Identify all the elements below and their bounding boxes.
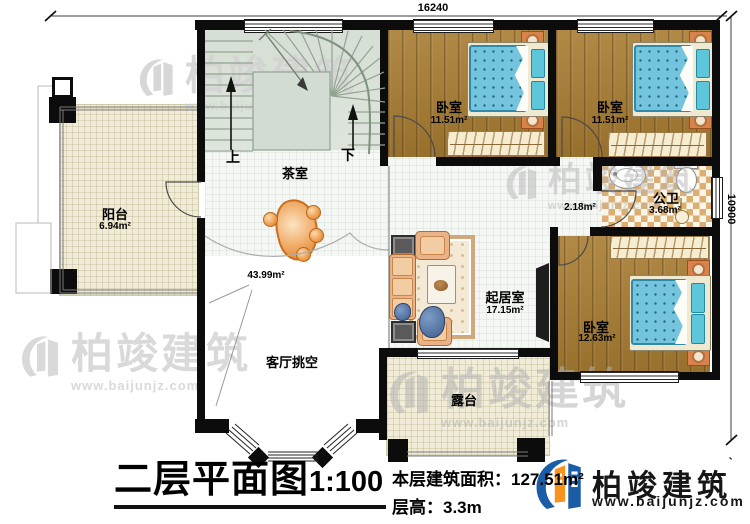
tea-room-stone xyxy=(296,247,311,262)
wall xyxy=(197,218,205,425)
top-dimension: 16240 xyxy=(404,2,462,14)
wall xyxy=(517,348,558,357)
watermark: 柏竣建筑 www.baijunjz.com xyxy=(138,56,357,113)
brand-url: www.baijunjz.com xyxy=(592,493,745,509)
bed-pillow xyxy=(531,81,545,110)
person-figure xyxy=(394,303,411,321)
bed-pillow xyxy=(531,49,545,78)
wall xyxy=(341,20,413,30)
wall xyxy=(550,227,558,380)
window xyxy=(577,19,654,33)
wall xyxy=(436,157,560,166)
wall xyxy=(593,157,602,191)
tea-room-stone xyxy=(306,205,321,220)
wardrobe xyxy=(608,132,707,157)
terrace-label: 露台 xyxy=(437,394,491,408)
exterior-projection-lines xyxy=(16,86,52,293)
armchair xyxy=(415,231,450,260)
bathroom-area: 3.68m² xyxy=(638,205,692,216)
bay-corner xyxy=(195,419,229,433)
watermark-name: 柏竣建筑 xyxy=(185,56,357,96)
watermark-logo-icon xyxy=(505,163,541,205)
right-dimension: 10900 xyxy=(725,179,737,239)
wall xyxy=(590,227,712,236)
watermark-url: www.baijunjz.com xyxy=(441,415,629,430)
carpet-motif xyxy=(434,280,448,291)
floor-plan-page: 柏竣建筑 www.baijunjz.com 柏竣建筑 www.baijunjz.… xyxy=(0,0,750,524)
floor-height-text: 层高：3.3m xyxy=(392,499,482,516)
tea-room-stone xyxy=(263,212,278,227)
living-room-area: 17.15m² xyxy=(477,305,533,316)
bay-corner xyxy=(356,419,385,433)
watermark-logo-icon xyxy=(20,333,64,383)
bed-pillow xyxy=(691,283,705,313)
terrace-window xyxy=(417,348,519,359)
bay-post xyxy=(312,447,333,468)
tea-room-stone xyxy=(309,228,324,243)
balcony-floor xyxy=(60,105,198,295)
wall xyxy=(652,20,720,30)
balcony-pillar xyxy=(50,269,77,294)
wall xyxy=(492,20,577,30)
living-room-label: 起居室 xyxy=(477,291,533,305)
side-table xyxy=(391,321,416,343)
void-label: 客厅挑空 xyxy=(260,356,324,370)
wardrobe xyxy=(610,236,709,259)
tea-room-label: 茶室 xyxy=(269,167,321,181)
bedroom2-label: 卧室 xyxy=(584,101,636,115)
floor-area-text: 本层建筑面积：127.51m² xyxy=(392,471,584,488)
watermark-url: www.baijunjz.com xyxy=(185,99,357,113)
wall xyxy=(677,372,720,380)
balcony-area: 6.94m² xyxy=(85,221,145,232)
stairs-up-label: 上 xyxy=(221,150,245,165)
terrace-pillar xyxy=(388,439,408,462)
bedroom3-window xyxy=(580,371,679,383)
watermark-url: www.baijunjz.com xyxy=(71,378,251,393)
bedroom3-area: 12.63m² xyxy=(566,333,628,344)
bathroom-window xyxy=(711,177,723,219)
bed-pillow xyxy=(696,81,710,110)
wall xyxy=(712,20,720,177)
bedroom1-label: 卧室 xyxy=(423,101,475,115)
watermark-text: 柏竣建筑 www.baijunjz.com xyxy=(185,56,357,113)
wall xyxy=(548,28,556,166)
bedroom1-area: 11.51m² xyxy=(420,115,478,126)
window xyxy=(413,19,494,33)
tv xyxy=(536,263,549,342)
window xyxy=(244,19,343,33)
bay-window-glazing xyxy=(226,424,357,461)
wall xyxy=(602,157,712,166)
person-figure xyxy=(419,306,445,338)
brand-tick: ˋ xyxy=(728,455,733,472)
watermark-name: 柏竣建筑 xyxy=(71,333,251,375)
watermark-logo-icon xyxy=(138,56,178,102)
hallway-area: 2.18m² xyxy=(554,202,606,213)
bedroom2-area: 11.51m² xyxy=(581,115,639,126)
stairs-down-label: 下 xyxy=(336,148,360,163)
title-underline xyxy=(114,505,386,509)
bed-pillow xyxy=(696,49,710,78)
wall xyxy=(712,217,720,380)
watermark-text: 柏竣建筑 www.baijunjz.com xyxy=(71,333,251,393)
watermark-logo-icon xyxy=(388,368,434,420)
wall xyxy=(197,20,205,182)
plan-title: 二层平面图 xyxy=(114,461,309,499)
bed-pillow xyxy=(691,314,705,344)
void-area-label: 43.99m² xyxy=(237,270,295,281)
wardrobe xyxy=(447,131,545,156)
watermark: 柏竣建筑 www.baijunjz.com xyxy=(20,333,251,393)
balcony-pillar xyxy=(49,97,76,123)
balcony-pillar xyxy=(52,77,73,98)
wall xyxy=(550,372,580,380)
plan-scale: 1:100 xyxy=(309,468,383,497)
wall xyxy=(380,28,388,166)
